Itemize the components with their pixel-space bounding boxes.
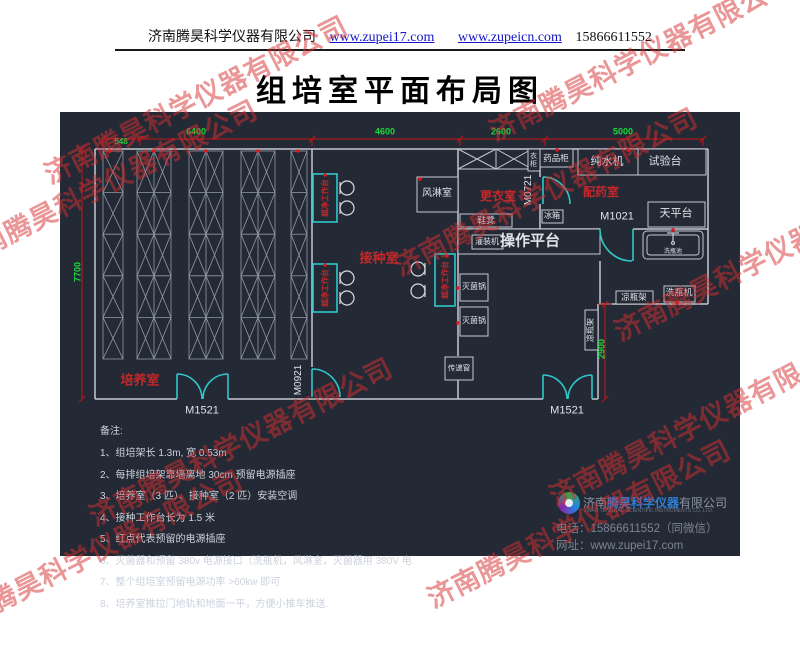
bottle-rack-label-h: 凉瓶架: [621, 293, 647, 302]
dim-6400: 6400: [186, 128, 206, 137]
page-title: 组培室平面布局图: [0, 66, 800, 110]
sterilizer-label-1: 灭菌锅: [462, 283, 486, 291]
transfer-window-label: 传递窗: [448, 364, 471, 372]
header-link-zupei17[interactable]: www.zupei17.com: [330, 30, 435, 45]
page-header: 济南腾昊科学仪器有限公司 www.zupei17.com www.zupeicn…: [0, 26, 800, 46]
clean-bench-label-2: 超净工作台: [321, 269, 329, 307]
stools: [340, 181, 425, 305]
sterilizer-label-2: 灭菌锅: [462, 317, 486, 325]
room-inoculation: 接种室: [359, 252, 398, 265]
footer-website[interactable]: 网址：www.zupei17.com: [556, 537, 683, 553]
door-m0921: M0921: [294, 365, 304, 396]
footer-phone: 电话：15866611552（同微信）: [556, 520, 718, 536]
room-dispensing: 配药室: [583, 186, 619, 198]
note-item: 7、整个组培室预留电源功率 >60kw 即可: [100, 573, 460, 588]
header-divider: [115, 49, 685, 51]
test-bench-label: 试验台: [649, 157, 682, 168]
door-m1021: M1021: [600, 212, 634, 223]
note-item: 8、培养室推拉门地轨和地面一平，方便小推车推送.: [100, 595, 460, 610]
door-m1521-right: M1521: [550, 406, 584, 417]
door-swings: [177, 177, 633, 399]
sink-label: 洗瓶池: [664, 249, 682, 255]
notes-block: 备注: 1、组培架长 1.3m, 宽 0.53m 2、每排组培架靠墙离地 30c…: [100, 422, 460, 616]
header-phone: 15866611552: [575, 30, 651, 45]
filling-machine-label: 灌装机: [475, 238, 499, 246]
note-item: 1、组培架长 1.3m, 宽 0.53m: [100, 444, 460, 459]
operation-platform-label: 操作平台: [500, 234, 560, 249]
shoe-bench-label: 鞋凳: [477, 217, 495, 226]
wardrobe-label: 衣柜: [530, 152, 537, 168]
culture-racks: [103, 151, 307, 359]
footer-company-english: JINAN TENGHAO SCIENTIFIC INSTRUMENTS CO.…: [584, 508, 713, 514]
dim-5000: 5000: [613, 128, 633, 137]
dim-4600: 4600: [375, 128, 395, 137]
clean-bench-label-3: 超净工作台: [441, 261, 449, 299]
header-link-zupeicn[interactable]: www.zupeicn.com: [458, 30, 562, 45]
water-purifier-label: 纯水机: [591, 157, 624, 168]
note-item: 4、接种工作台长为 1.5 米: [100, 509, 460, 524]
balance-table-label: 天平台: [660, 209, 693, 220]
company-logo-icon: [558, 492, 580, 514]
bottle-rack-label-v: 凉瓶架: [587, 318, 595, 342]
air-shower-label: 风淋室: [422, 189, 452, 199]
door-m1521-left: M1521: [185, 406, 219, 417]
floorplan-canvas: 548 6400 4600 2600 5000 7700 2900 培养室 接种…: [60, 112, 740, 556]
header-company: 济南腾昊科学仪器有限公司: [148, 30, 316, 45]
room-changing: 更衣室: [480, 190, 516, 202]
door-m0721: M0721: [524, 175, 534, 206]
bottle-washer-label: 洗瓶机: [665, 289, 692, 298]
fridge-label: 冰箱: [544, 212, 560, 220]
note-item: 5、红点代表预留的电源插座: [100, 530, 460, 545]
medicine-cabinet-label: 药品柜: [543, 154, 569, 163]
dim-2600: 2600: [491, 128, 511, 137]
notes-title: 备注:: [100, 422, 460, 437]
note-item: 2、每排组培架靠墙离地 30cm 预留电源插座: [100, 466, 460, 481]
note-item: 6、灭菌器和预留 380v 电源接口（洗瓶机，风淋室，灭菌器用 380V 电: [100, 552, 460, 567]
page: { "header": { "company": "济南腾昊科学仪器有限公司",…: [0, 0, 800, 600]
locker-cabinets: [458, 149, 532, 169]
dim-548: 548: [114, 138, 127, 146]
room-cultivation: 培养室: [120, 374, 159, 387]
dimension-lines: [79, 136, 706, 402]
clean-bench-label-1: 超净工作台: [321, 179, 329, 217]
dim-2900: 2900: [598, 339, 607, 359]
dim-7700: 7700: [74, 262, 83, 282]
note-item: 3、培养室（3 匹）、接种室（2 匹）安装空调: [100, 487, 460, 502]
